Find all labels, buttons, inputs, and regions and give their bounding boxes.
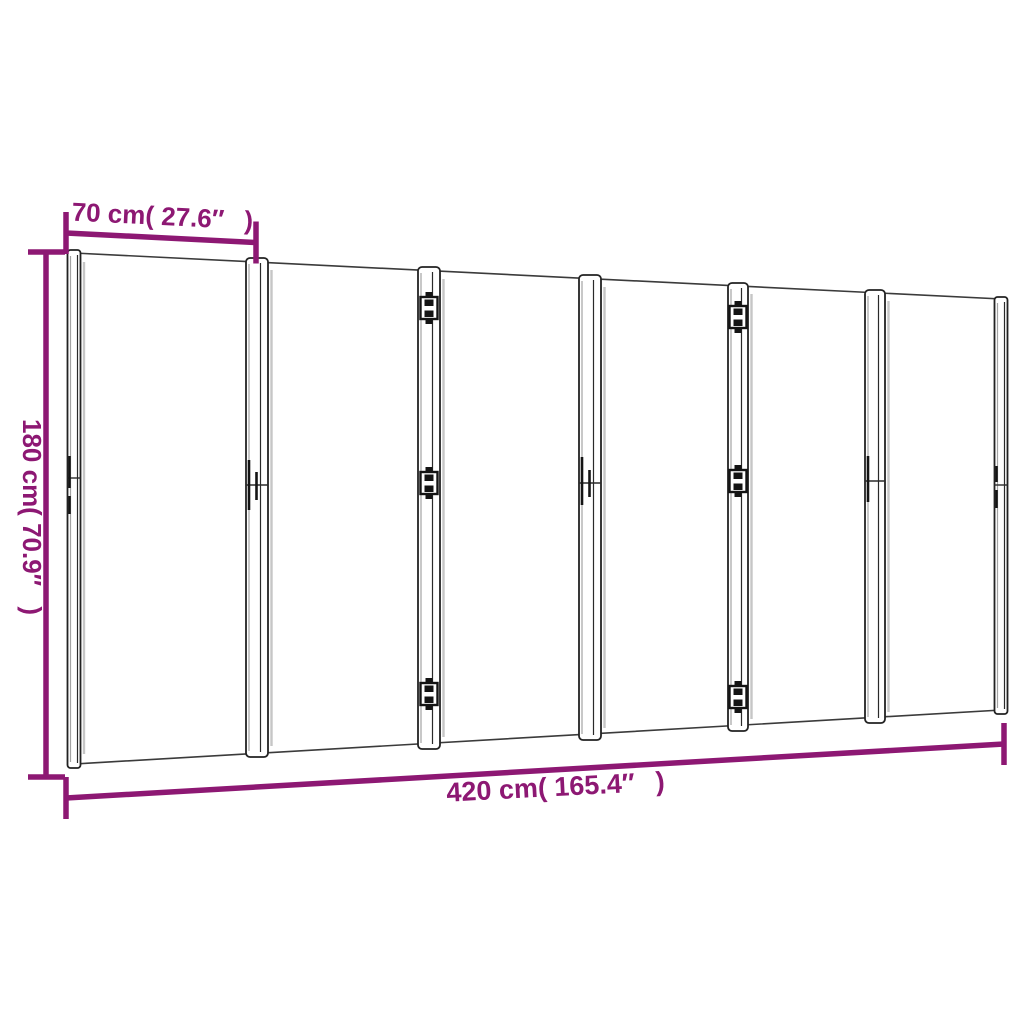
- hinge-icon: [730, 465, 747, 497]
- hinge-icon: [421, 467, 438, 499]
- product-dimension-diagram: 70 cm( 27.6″ ) 180 cm( 70.9″ ) 420 cm( 1…: [0, 0, 1024, 1024]
- hinge-icon: [730, 301, 747, 333]
- dimension-line: [66, 233, 256, 243]
- hinge-icon: [421, 678, 438, 710]
- room-divider-illustration: [68, 250, 1008, 768]
- divider-diagram-canvas: 70 cm( 27.6″ ) 180 cm( 70.9″ ) 420 cm( 1…: [0, 0, 1024, 1024]
- hinge-icon: [421, 292, 438, 324]
- fabric-panels: [74, 253, 1001, 764]
- panel-width-dimension-label: 70 cm( 27.6″ ): [71, 197, 254, 236]
- height-dimension-label: 180 cm( 70.9″ ): [17, 419, 47, 615]
- hinge-icon: [730, 681, 747, 713]
